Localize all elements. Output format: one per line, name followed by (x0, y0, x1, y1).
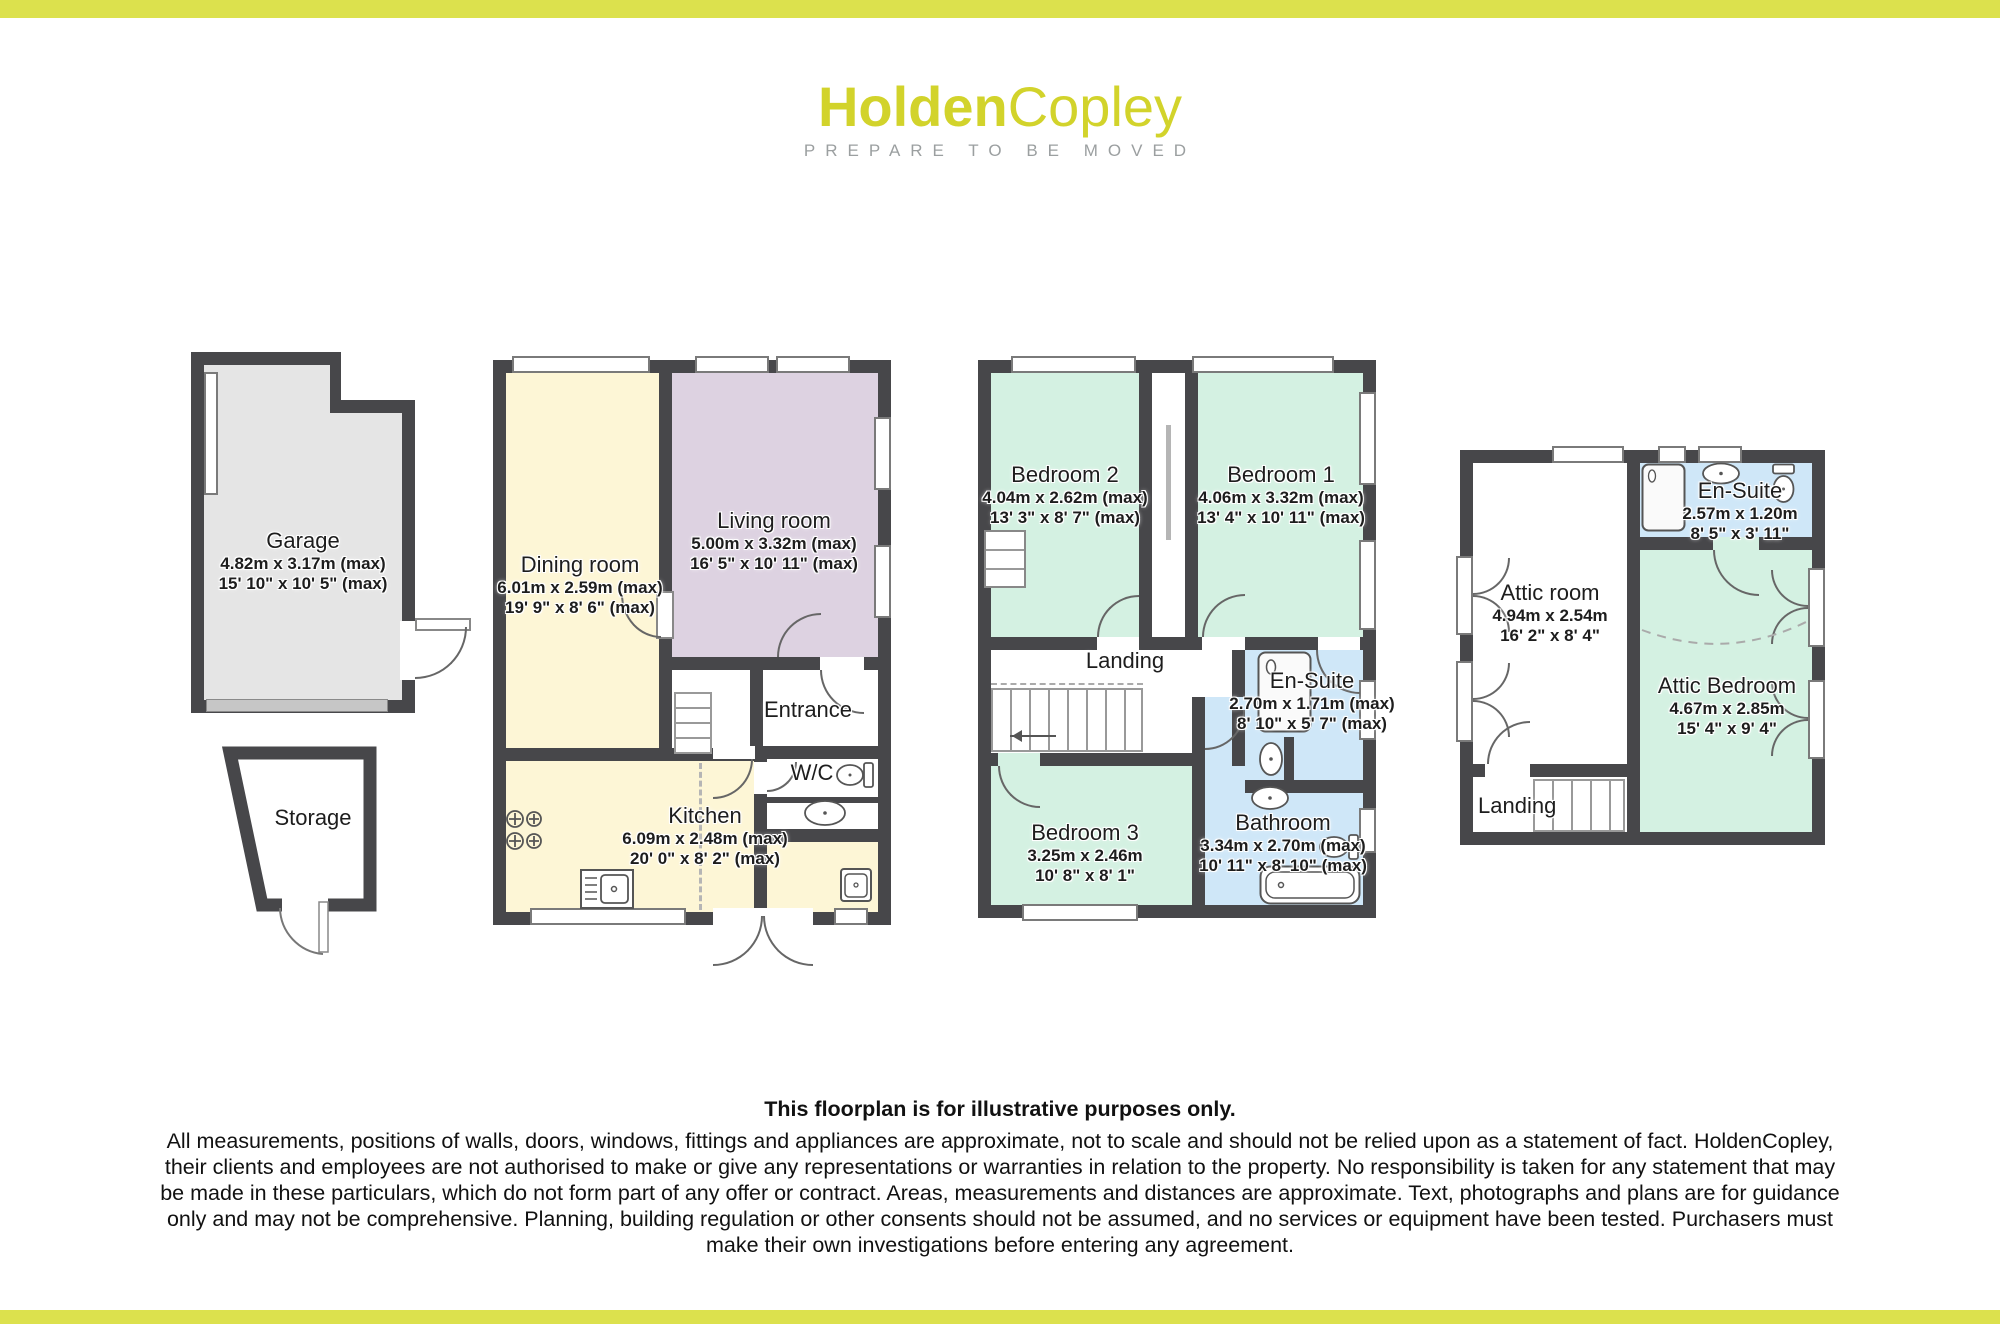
disclaimer-title: This floorplan is for illustrative purpo… (160, 1097, 1840, 1122)
toilet-icon (835, 761, 875, 789)
room-label-attic: Attic room 4.94m x 2.54m 16' 2" x 8' 4" (1492, 580, 1607, 646)
door-opening (754, 762, 767, 794)
room-label-attic-bedroom: Attic Bedroom 4.67m x 2.85m 15' 4" x 9' … (1658, 673, 1796, 739)
door-opening (1202, 637, 1245, 650)
window (874, 417, 891, 490)
window (1022, 904, 1138, 921)
kitchen-sink-icon (580, 869, 634, 909)
window (1658, 446, 1686, 463)
window (530, 908, 686, 925)
window (1552, 446, 1624, 463)
front-door-opening (820, 657, 864, 670)
floorplan-page: HoldenCopley PREPARE TO BE MOVED Garage … (0, 0, 2000, 1324)
window (776, 356, 850, 373)
room-label-ensuite-first: En-Suite 2.70m x 1.71m (max) 8' 10" x 5'… (1229, 668, 1394, 734)
sloped-ceiling-dashed-line (1640, 610, 1812, 665)
bottom-accent-bar (0, 1310, 2000, 1324)
storage-outline (218, 742, 388, 980)
stairs-dashed-line (991, 683, 1143, 685)
door-opening (713, 746, 755, 759)
wall-segment (1284, 737, 1294, 780)
room-label-kitchen: Kitchen 6.09m x 2.48m (max) 20' 0" x 8' … (622, 803, 787, 869)
window (512, 356, 650, 373)
window (1359, 540, 1376, 630)
basin-icon (1257, 740, 1285, 778)
shower-icon (1641, 463, 1686, 532)
built-in-cupboard (984, 530, 1026, 588)
room-label-bathroom: Bathroom 3.34m x 2.70m (max) 10' 11" x 8… (1199, 810, 1367, 876)
room-label-landing-attic: Landing (1478, 793, 1556, 819)
small-sink-icon (840, 868, 872, 902)
room-label-bedroom2: Bedroom 2 4.04m x 2.62m (max) 13' 3" x 8… (982, 462, 1147, 528)
door-opening (1456, 556, 1473, 635)
room-label-wc: W/C (791, 760, 834, 786)
window (1192, 356, 1334, 373)
door-opening (1318, 637, 1360, 650)
door-opening (1808, 680, 1825, 759)
room-label-storage: Storage (274, 805, 351, 831)
disclaimer-body: All measurements, positions of walls, do… (160, 1128, 1840, 1258)
stairs (674, 692, 712, 754)
basin-icon (1249, 784, 1291, 812)
room-label-living: Living room 5.00m x 3.32m (max) 16' 5" x… (690, 508, 858, 574)
door-opening (1456, 661, 1473, 742)
door-opening (998, 753, 1040, 766)
chimney-breast (1166, 425, 1171, 540)
window (834, 908, 868, 925)
room-label-landing-first: Landing (1086, 648, 1164, 674)
window (695, 356, 769, 373)
room-label-entrance: Entrance (764, 697, 852, 723)
window (874, 545, 891, 618)
disclaimer: This floorplan is for illustrative purpo… (160, 1097, 1840, 1258)
room-label-bedroom3: Bedroom 3 3.25m x 2.46m 10' 8" x 8' 1" (1027, 820, 1142, 886)
room-label-bedroom1: Bedroom 1 4.06m x 3.32m (max) 13' 4" x 1… (1197, 462, 1365, 528)
window (1011, 356, 1136, 373)
room-label-garage: Garage 4.82m x 3.17m (max) 15' 10" x 10'… (219, 528, 388, 594)
room-label-dining: Dining room 6.01m x 2.59m (max) 19' 9" x… (497, 552, 662, 618)
garage-up-and-over-door (206, 699, 388, 712)
basin-icon (802, 799, 848, 828)
door-opening (1485, 764, 1530, 777)
garage-door-opening (400, 621, 415, 680)
garage-window (204, 372, 218, 495)
room-label-ensuite-attic: En-Suite 2.57m x 1.20m 8' 5" x 3' 11" (1682, 478, 1797, 544)
hob-icon (503, 806, 545, 854)
stairs-direction-arrow (1000, 728, 1060, 744)
